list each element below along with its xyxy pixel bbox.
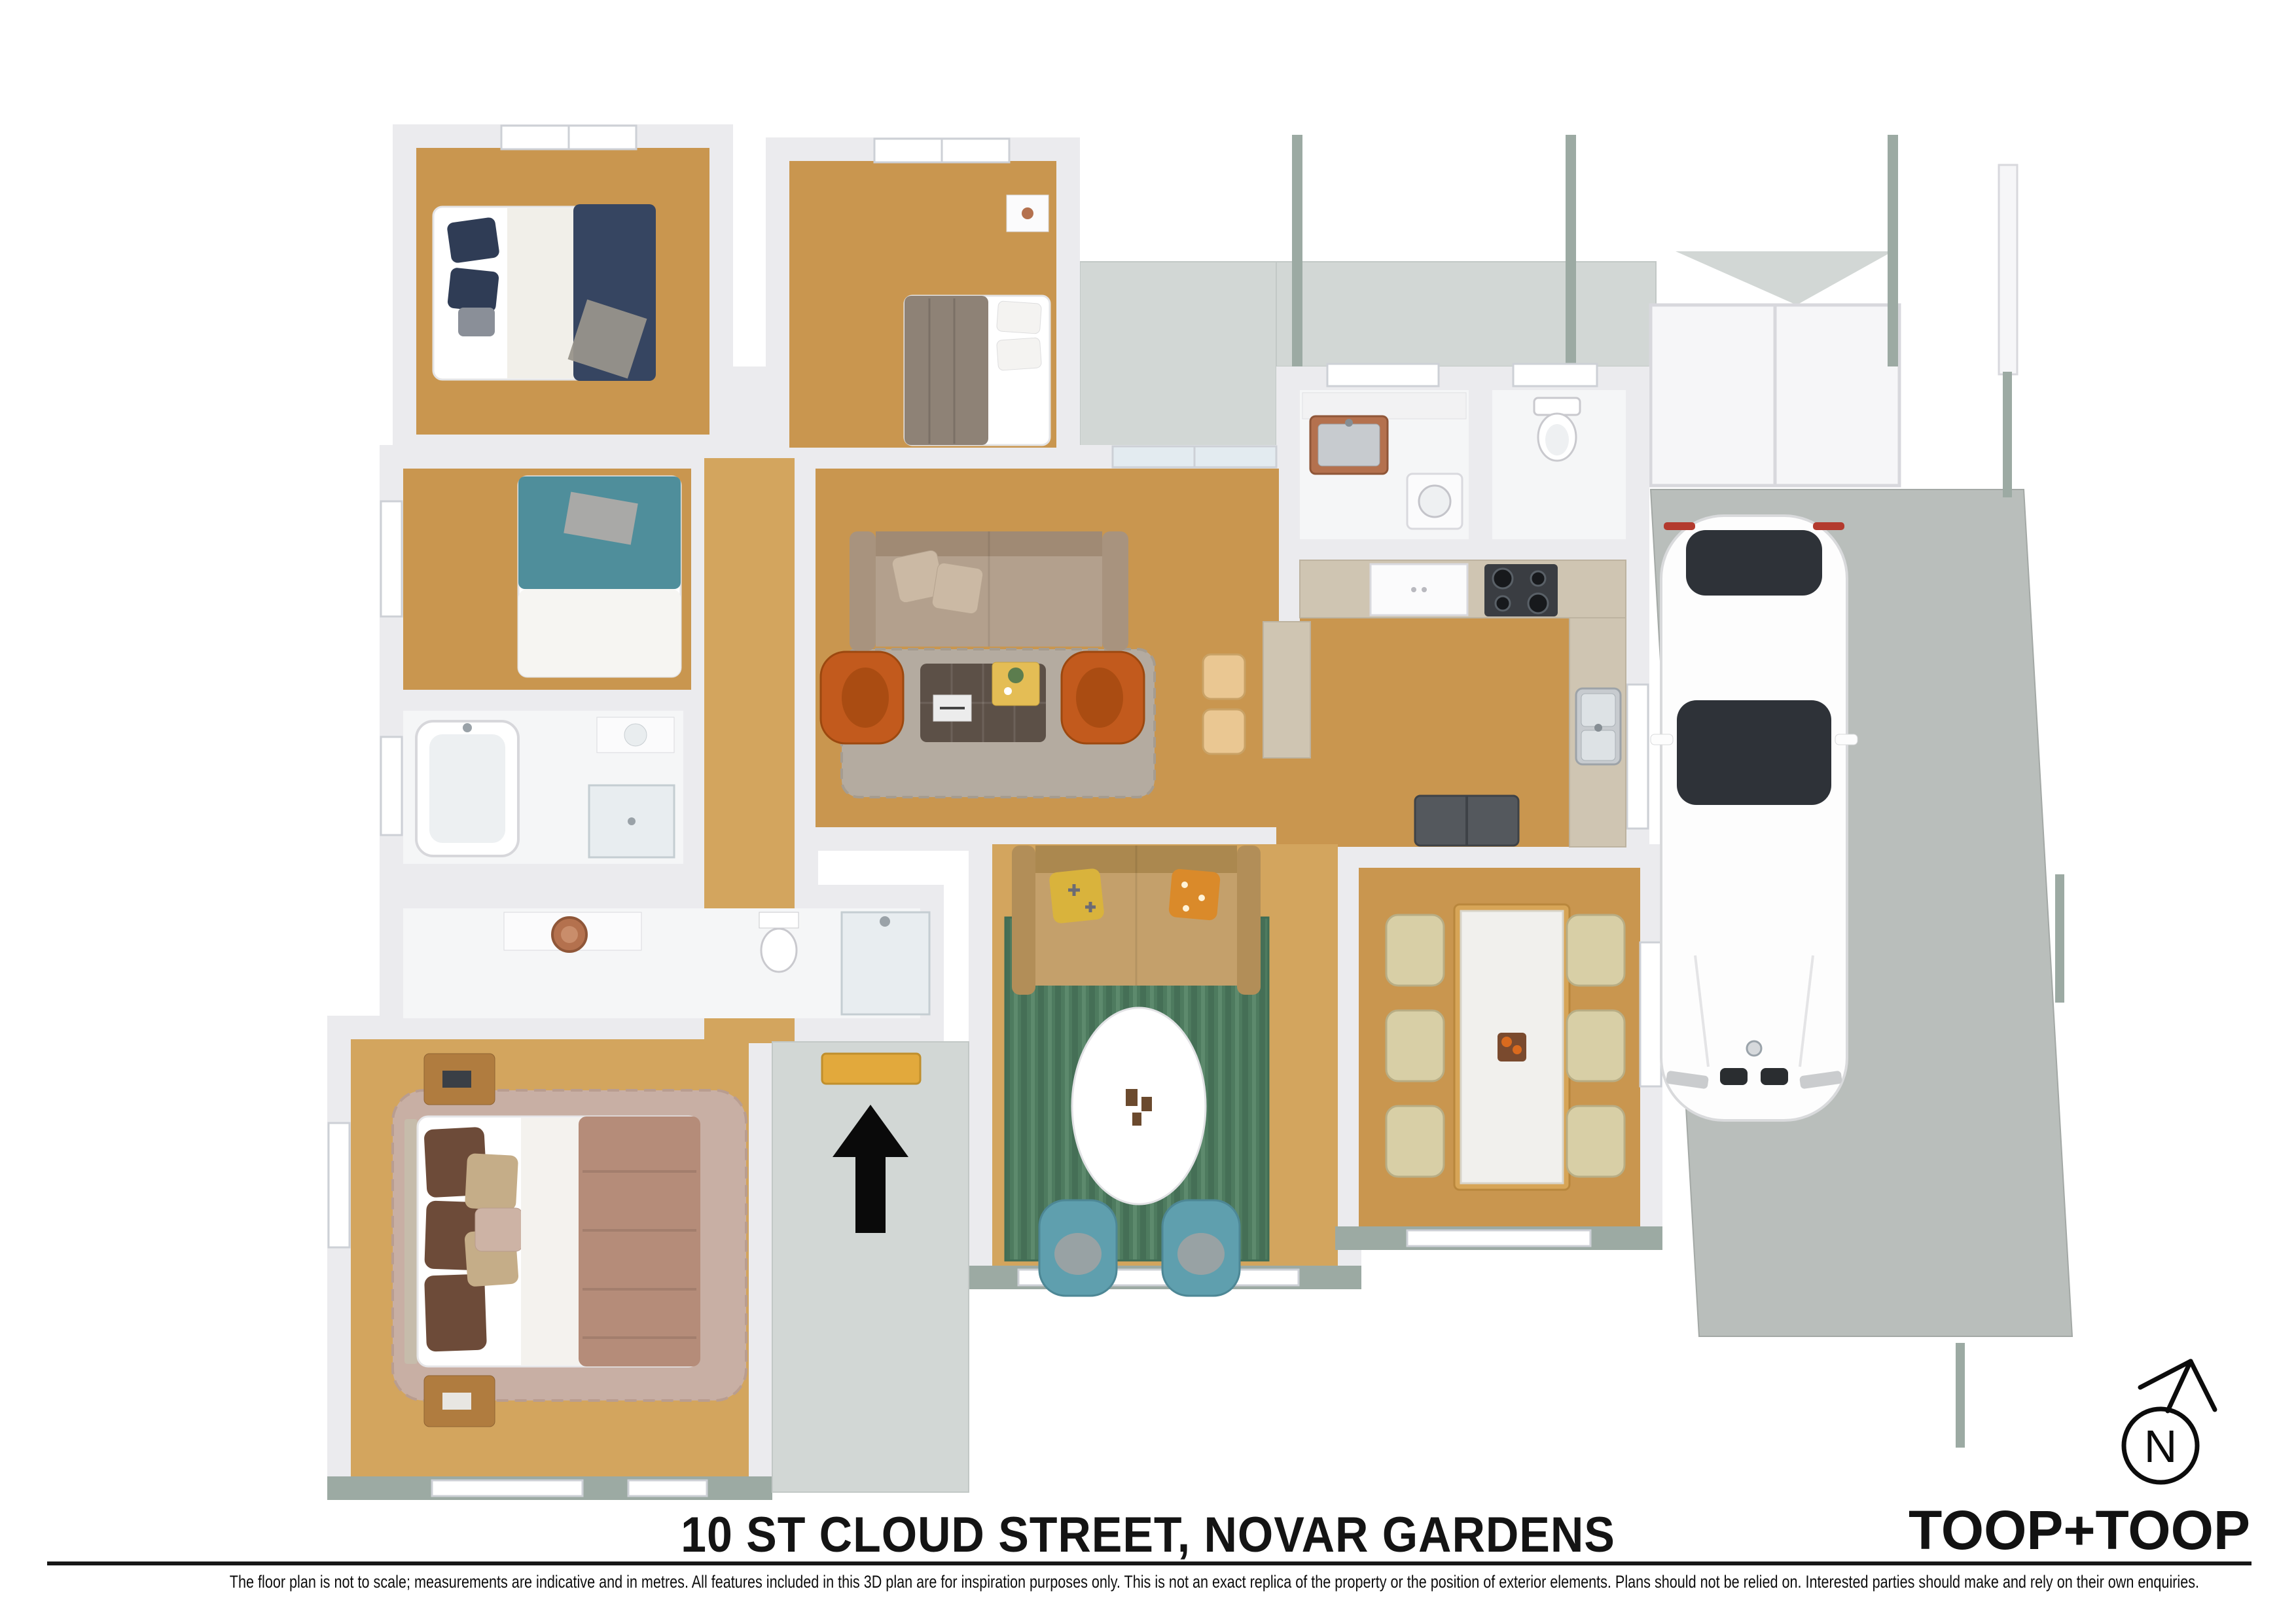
window-master-b2 (628, 1480, 707, 1496)
ensuite-toilet-tank (759, 912, 798, 928)
stove (1484, 564, 1558, 616)
washer (1407, 474, 1462, 529)
living-sofa (850, 531, 1128, 651)
window-master-left (329, 1123, 350, 1247)
master-headboard (404, 1119, 418, 1364)
side-table (992, 662, 1039, 705)
entry-porch (772, 1042, 969, 1492)
oval-coffee-table (1072, 1008, 1206, 1204)
windshield (1677, 700, 1831, 805)
car (1651, 516, 1857, 1120)
window-kitchen (1627, 685, 1648, 829)
north-label: N (2144, 1421, 2178, 1472)
bedroom-1-bed (433, 204, 656, 381)
north-compass: N (2124, 1361, 2215, 1482)
window-dining-bottom (1407, 1230, 1590, 1246)
lamp (1022, 207, 1033, 219)
disclaimer-text: The floor plan is not to scale; measurem… (230, 1572, 2066, 1592)
doormat (822, 1054, 920, 1084)
dining-room-furniture (1386, 904, 1624, 1190)
emblem (1747, 1041, 1761, 1056)
window-wc (1513, 364, 1597, 386)
ensuite-toilet (761, 929, 797, 972)
page-title: 10 ST CLOUD STREET, NOVAR GARDENS (92, 1507, 2204, 1563)
fence-post (1999, 165, 2017, 374)
plus-pillow (1049, 868, 1105, 924)
pantry (1371, 564, 1467, 615)
window-bed3 (381, 501, 402, 616)
window-bath (381, 737, 402, 835)
fridge (1415, 796, 1518, 846)
window-master-b1 (432, 1480, 583, 1496)
ensuite-shower (842, 912, 929, 1014)
floral-pillow (1168, 868, 1221, 921)
wc-toilet (1534, 398, 1580, 461)
family-sofa (1012, 846, 1261, 995)
basin (624, 724, 647, 746)
window-laundry (1327, 364, 1439, 386)
gate (1651, 305, 1899, 486)
bedroom-3-bed (518, 476, 681, 677)
kitchen-island (1263, 622, 1310, 758)
master-duvet (579, 1116, 700, 1366)
window-dining-right (1640, 942, 1661, 1086)
family-room-furniture (1005, 846, 1268, 1296)
master-bedroom-furniture (393, 1054, 746, 1427)
kitchen-sink (1576, 688, 1621, 764)
gate-path (1676, 251, 1893, 305)
brand-logo: TOOP+TOOP (1909, 1499, 2250, 1562)
floor-plan-svg: N (0, 0, 2296, 1623)
rear-window (1686, 530, 1822, 596)
